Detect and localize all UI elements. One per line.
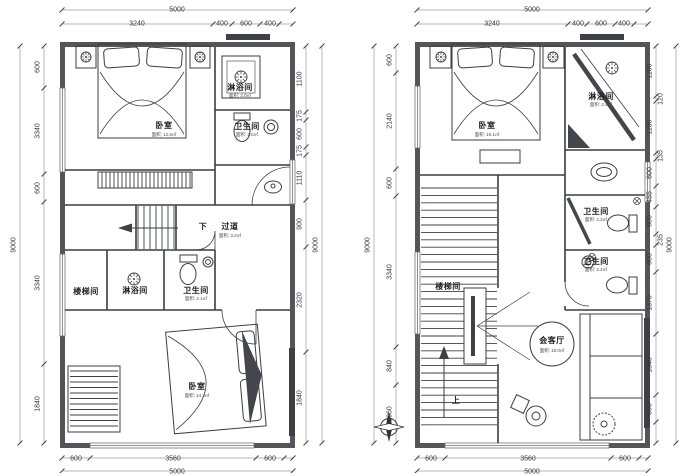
north-compass-icon <box>374 412 404 442</box>
floor-plan-left-drawing <box>60 34 295 448</box>
wall-basin-icon <box>265 181 282 193</box>
floor-plan-linework <box>0 0 694 473</box>
shower-seat <box>568 124 590 148</box>
toilet-icon <box>607 277 638 294</box>
toilet-icon <box>180 255 197 285</box>
room-label-circle <box>530 322 574 366</box>
showerhead-flower-icon <box>548 52 558 62</box>
toilet-icon <box>234 113 250 142</box>
showerhead-flower-icon <box>235 71 247 83</box>
showerhead-flower-icon <box>436 52 446 62</box>
floor-plan-right-drawing <box>415 34 650 448</box>
round-cushion-icon <box>593 413 615 435</box>
bath-door-leaf <box>568 198 590 244</box>
showerhead-flower-icon <box>195 52 205 62</box>
outer-walls <box>415 34 650 448</box>
floor-drain-icon <box>589 198 641 261</box>
wardrobe <box>68 366 120 432</box>
corridor-down-arrow <box>118 224 178 233</box>
showerhead-flower-icon <box>81 52 91 62</box>
dimension-lines <box>18 8 679 474</box>
showerhead-flower-icon <box>128 273 140 285</box>
showerhead-flower-icon <box>606 62 618 74</box>
stair-up-arrow <box>439 346 449 418</box>
bed <box>166 324 267 434</box>
partition-walls <box>65 47 290 310</box>
sink-icon <box>264 120 278 134</box>
toilet-icon <box>608 215 638 232</box>
bed <box>98 44 186 138</box>
sink-icon <box>582 256 594 268</box>
floor-plan-sheet: 5000324040060040090006003340600334018401… <box>0 0 694 473</box>
stair-door <box>464 288 538 364</box>
coffee-table-icon <box>511 395 546 426</box>
basin-icon <box>591 163 617 181</box>
bed <box>452 44 540 140</box>
bed-bench <box>480 150 520 163</box>
door-arcs <box>196 167 290 344</box>
stair-treads-and-symbols <box>70 52 618 426</box>
sofa <box>580 314 642 440</box>
door-arcs <box>565 282 589 306</box>
sink-icon <box>203 257 213 267</box>
plan-overlay <box>118 224 615 443</box>
shower-glass <box>574 54 634 140</box>
